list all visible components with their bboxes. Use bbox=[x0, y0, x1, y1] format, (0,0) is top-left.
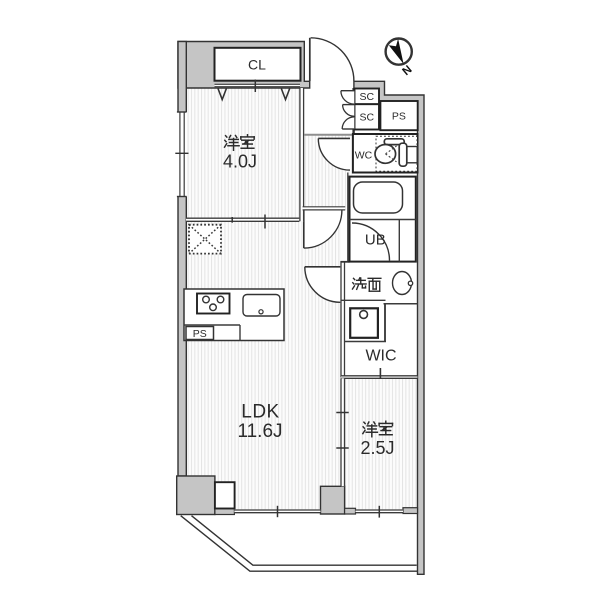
svg-text:UB: UB bbox=[365, 231, 386, 248]
svg-text:SC: SC bbox=[360, 112, 375, 124]
svg-text:PS: PS bbox=[193, 328, 207, 340]
svg-text:SC: SC bbox=[360, 91, 375, 103]
svg-text:2.5J: 2.5J bbox=[360, 438, 394, 458]
svg-text:CL: CL bbox=[248, 56, 266, 72]
svg-text:4.0J: 4.0J bbox=[223, 151, 257, 171]
svg-text:LDK: LDK bbox=[241, 402, 279, 423]
svg-text:PS: PS bbox=[392, 110, 406, 122]
svg-text:11.6J: 11.6J bbox=[237, 421, 282, 442]
svg-text:WC: WC bbox=[355, 149, 373, 161]
svg-text:WIC: WIC bbox=[365, 348, 396, 365]
